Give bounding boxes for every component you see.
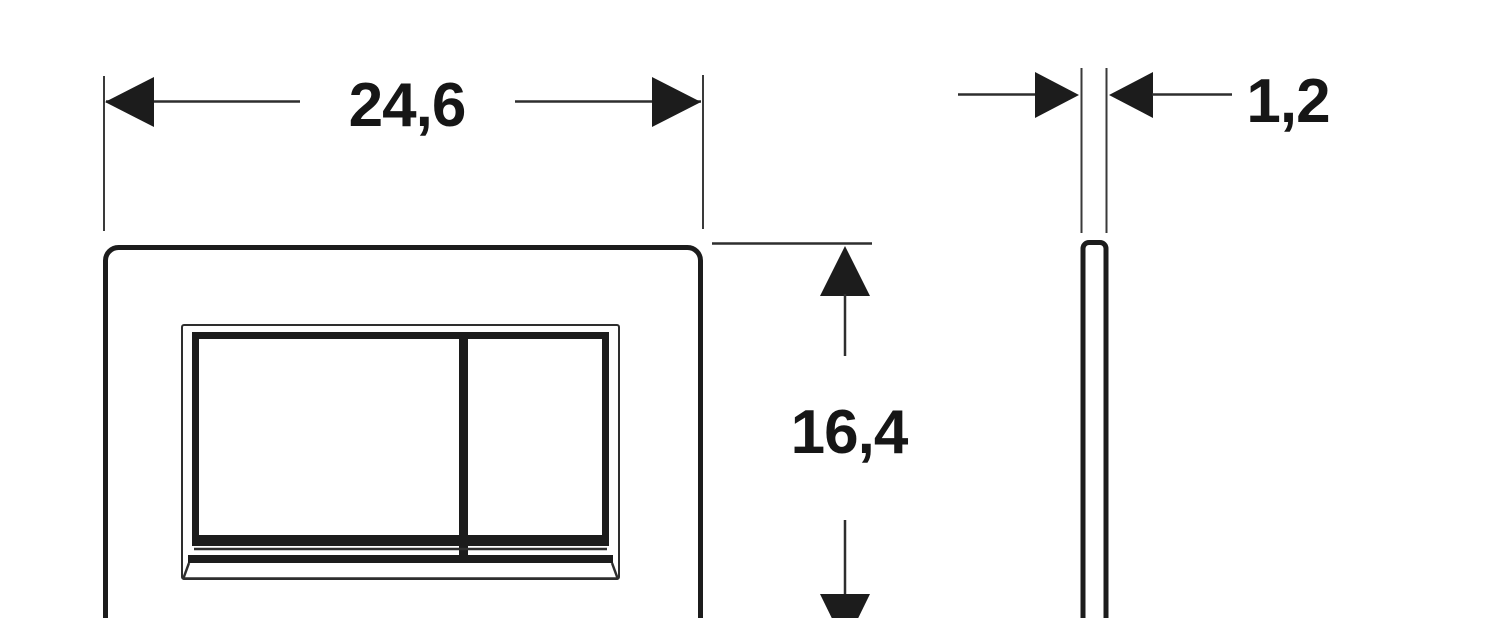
dimension-height: 16,4 xyxy=(712,244,909,618)
recess-step-shadow xyxy=(188,555,613,563)
width-dimension-label: 24,6 xyxy=(349,71,466,140)
button-divider xyxy=(459,334,468,563)
dimension-width: 24,6 xyxy=(104,71,703,231)
dimension-thickness: 1,2 xyxy=(958,67,1330,136)
buttons-bottom-shadow xyxy=(192,535,609,546)
flush-plate-dimension-drawing: 24,6 16,4 1,2 xyxy=(0,0,1500,618)
arrowhead-left-icon xyxy=(105,77,154,127)
technical-drawing-canvas: 24,6 16,4 1,2 xyxy=(0,0,1500,618)
height-dimension-label: 16,4 xyxy=(791,398,909,467)
side-view xyxy=(1082,68,1107,618)
arrowhead-inward-left-icon xyxy=(1109,72,1153,118)
arrowhead-right-icon xyxy=(652,77,701,127)
arrowhead-down-icon xyxy=(820,594,870,618)
arrowhead-up-icon xyxy=(820,246,870,296)
side-profile-outline xyxy=(1083,243,1106,618)
thickness-dimension-label: 1,2 xyxy=(1246,67,1329,136)
flush-buttons-frame xyxy=(196,336,606,542)
front-view xyxy=(106,248,701,618)
arrowhead-inward-right-icon xyxy=(1035,72,1079,118)
